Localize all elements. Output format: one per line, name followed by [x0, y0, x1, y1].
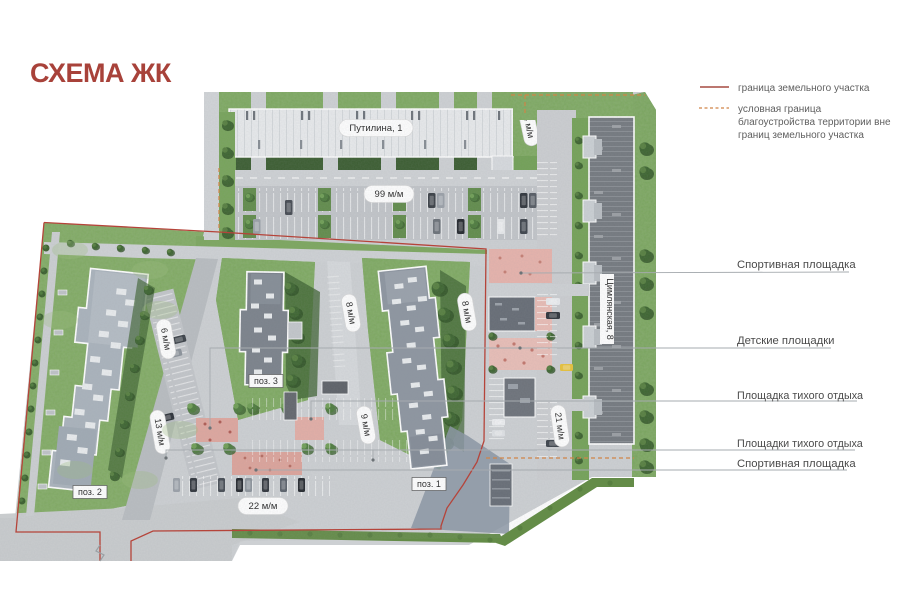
- svg-text:граница земельного участка: граница земельного участка: [738, 83, 870, 94]
- svg-text:Площадка тихого отдыха: Площадка тихого отдыха: [737, 390, 863, 402]
- svg-text:границ земельного участка: границ земельного участка: [738, 130, 864, 141]
- svg-text:Спортивная площадка: Спортивная площадка: [737, 458, 856, 470]
- svg-text:Спортивная площадка: Спортивная площадка: [737, 259, 856, 271]
- svg-text:Площадки тихого отдыха: Площадки тихого отдыха: [737, 438, 863, 450]
- svg-text:благоустройства территории вне: благоустройства территории вне: [738, 116, 891, 128]
- svg-text:СХЕМА ЖК: СХЕМА ЖК: [30, 58, 172, 88]
- svg-text:Детские площадки: Детские площадки: [737, 335, 834, 347]
- svg-text:условная граница: условная граница: [738, 104, 822, 115]
